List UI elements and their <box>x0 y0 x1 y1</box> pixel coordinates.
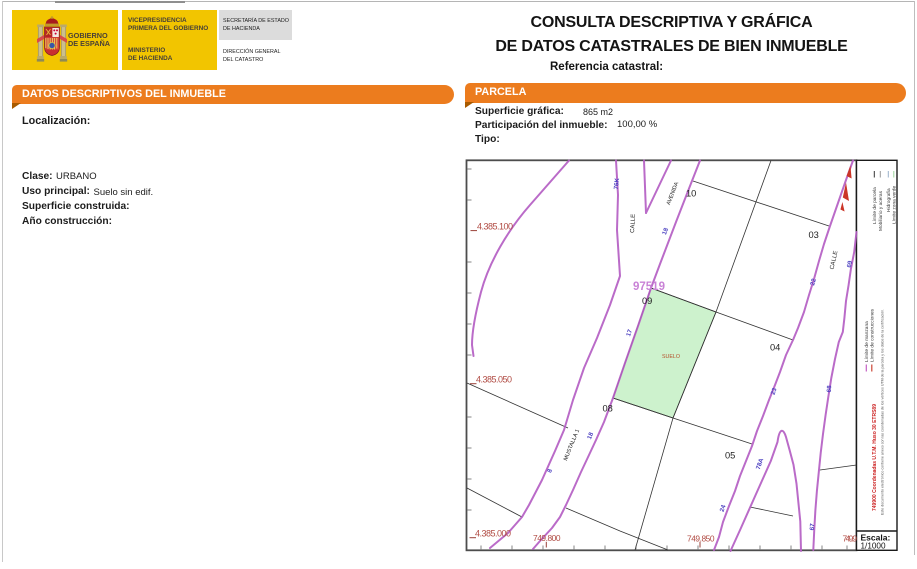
svg-text:4.385.100: 4.385.100 <box>477 221 513 231</box>
svg-text:67: 67 <box>809 523 817 531</box>
svg-text:97519: 97519 <box>633 281 665 293</box>
svg-text:749.800: 749.800 <box>533 533 561 543</box>
svg-text:4.385.000: 4.385.000 <box>475 529 511 539</box>
svg-text:Límite de construcciones: Límite de construcciones <box>870 308 876 362</box>
svg-text:03: 03 <box>809 230 819 240</box>
svg-text:CALLE: CALLE <box>630 214 637 233</box>
svg-text:05: 05 <box>725 451 735 461</box>
svg-text:Hidrografía: Hidrografía <box>886 188 892 212</box>
svg-text:Límite zona verde: Límite zona verde <box>892 186 898 224</box>
svg-text:10: 10 <box>686 189 696 199</box>
svg-text:04: 04 <box>770 343 780 353</box>
svg-text:68: 68 <box>826 385 834 393</box>
svg-text:Este documento electrónico con: Este documento electrónico contiene anex… <box>881 309 885 515</box>
svg-text:Límite de manzana: Límite de manzana <box>864 321 870 362</box>
svg-text:4.385.050: 4.385.050 <box>476 375 512 385</box>
svg-text:749.9: 749.9 <box>843 534 858 544</box>
svg-text:SUELO: SUELO <box>662 354 680 360</box>
svg-text:Límite de parcela: Límite de parcela <box>872 187 878 224</box>
svg-text:76K: 76K <box>613 177 621 190</box>
svg-text:749.850: 749.850 <box>687 534 715 544</box>
svg-text:749900 Coordenadas U.T.M. Huso: 749900 Coordenadas U.T.M. Huso 30 ETRS89 <box>872 404 878 511</box>
svg-text:08: 08 <box>603 404 613 414</box>
svg-text:1/1000: 1/1000 <box>861 542 886 551</box>
svg-text:09: 09 <box>642 296 652 306</box>
svg-text:Mobiliario y aceras: Mobiliario y aceras <box>878 190 884 231</box>
